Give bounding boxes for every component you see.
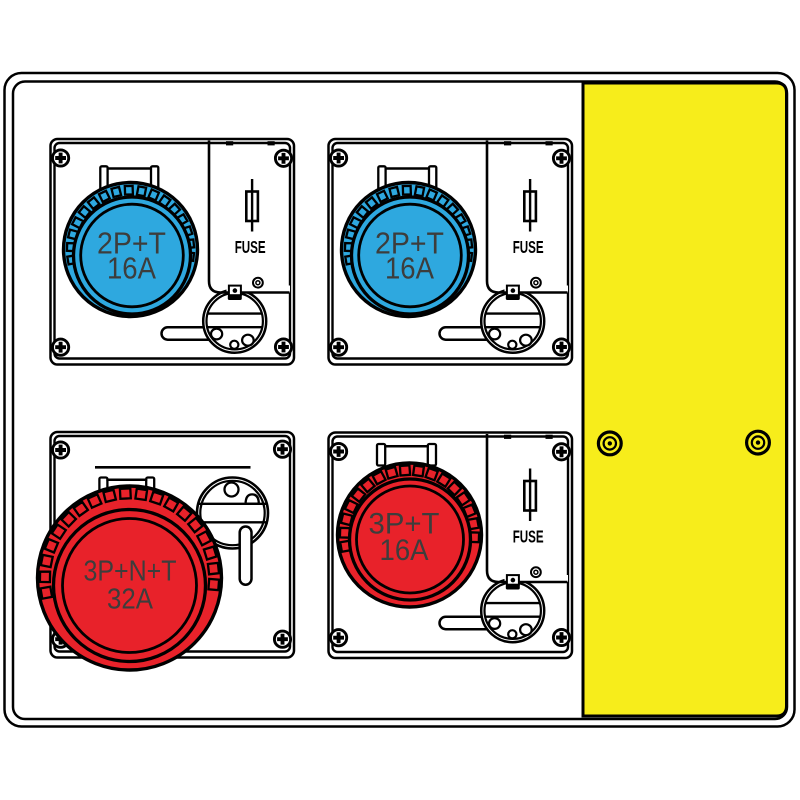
svg-text:FUSE: FUSE	[235, 237, 266, 257]
svg-text:16A: 16A	[385, 251, 434, 286]
svg-text:FUSE: FUSE	[513, 237, 544, 257]
svg-text:32A: 32A	[107, 584, 154, 616]
svg-text:16A: 16A	[380, 534, 429, 567]
svg-text:16A: 16A	[107, 251, 156, 286]
svg-text:FUSE: FUSE	[513, 527, 544, 547]
